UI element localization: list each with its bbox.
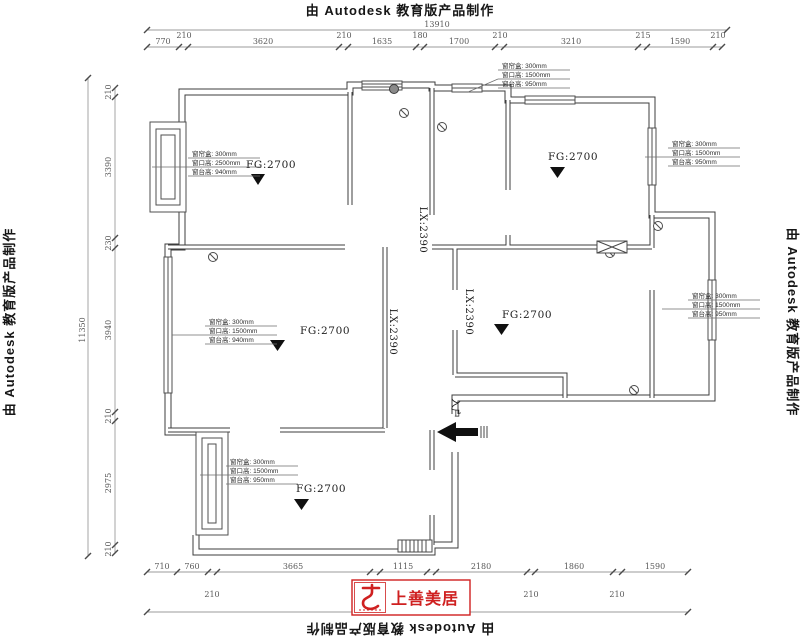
window-right-middle [708, 280, 716, 340]
logo-text: 上善美居 [391, 589, 459, 608]
dim-value: 2180 [471, 562, 491, 571]
dim-value: 1635 [372, 37, 392, 46]
window-callout-right-top: 窗帘盒: 300mm 窗口高: 1500mm 窗台高: 950mm [645, 139, 740, 166]
callout-row: 窗口高: 1500mm [230, 466, 278, 475]
window-left-middle [164, 257, 172, 393]
dim-labels-top: 13910 770 210 3620 210 1635 180 1700 210… [155, 20, 725, 46]
dim-value: 210 [609, 590, 624, 599]
dim-labels-left: 11350 210 3390 230 3940 210 2975 210 [78, 84, 113, 556]
dim-value: 180 [412, 31, 427, 40]
sliding-door-icon [597, 241, 627, 253]
window-callout-left-middle: 窗帘盒: 300mm 窗口高: 1500mm 窗台高: 940mm [172, 317, 277, 344]
level-triangle-icon [494, 324, 509, 335]
callout-row: 窗台高: 950mm [692, 309, 737, 318]
callout-row: 窗口高: 1500mm [692, 300, 740, 309]
dim-value: 210 [104, 541, 113, 556]
dim-value: 1590 [670, 37, 690, 46]
dim-value: 3940 [104, 320, 113, 340]
window-callout-bottom: 窗帘盒: 300mm 窗口高: 1500mm 窗台高: 950mm [200, 457, 298, 484]
callout-row: 窗台高: 940mm [192, 167, 237, 176]
drain-pipe-icon [390, 85, 399, 94]
window-callout-right-middle: 窗帘盒: 300mm 窗口高: 1500mm 窗台高: 950mm [662, 291, 760, 318]
cad-floorplan-screenshot: 由 Autodesk 教育版产品制作 由 Autodesk 教育版产品制作 由 … [0, 0, 800, 640]
dim-value: 3665 [283, 562, 303, 571]
callout-row: 窗台高: 950mm [230, 475, 275, 484]
callout-row: 窗帘盒: 300mm [502, 61, 547, 70]
dim-row-top-segments [144, 44, 725, 50]
dim-value: 3390 [104, 157, 113, 177]
dim-value: 215 [635, 31, 650, 40]
dim-row-bottom-segments [144, 569, 691, 575]
floor-plan-canvas: 由 Autodesk 教育版产品制作 由 Autodesk 教育版产品制作 由 … [0, 0, 800, 640]
fg-label: FG:2700 [300, 325, 350, 337]
fg-label: FG:2700 [246, 159, 296, 171]
entry-label: 入户 [449, 398, 462, 418]
callout-row: 窗台高: 950mm [672, 157, 717, 166]
callout-row: 窗台高: 950mm [502, 79, 547, 88]
lx-label: LX:2390 [463, 289, 474, 336]
dim-value: 210 [523, 590, 538, 599]
dim-value: 210 [336, 31, 351, 40]
dim-value: 1590 [645, 562, 665, 571]
fg-label: FG:2700 [296, 483, 346, 495]
fg-label: FG:2700 [548, 151, 598, 163]
fg-label: FG:2700 [502, 309, 552, 321]
dim-row-left-overall [85, 75, 91, 559]
dim-value: 3210 [561, 37, 581, 46]
callout-row: 窗帘盒: 300mm [230, 457, 275, 466]
dim-value: 13910 [424, 20, 449, 29]
level-triangle-icon [294, 499, 309, 510]
callout-row: 窗帘盒: 300mm [209, 317, 254, 326]
room-labels: FG:2700 FG:2700 FG:2700 FG:2700 FG:2700 … [246, 151, 598, 510]
dim-value: 230 [104, 235, 113, 250]
entry-marker: 入户 [437, 398, 487, 442]
callout-row: 窗帘盒: 300mm [692, 291, 737, 300]
dim-value: 210 [492, 31, 507, 40]
brand-logo: 上善美居 [352, 580, 470, 615]
window-callout-left-top: 窗帘盒: 300mm 窗口高: 2500mm 窗台高: 940mm [152, 149, 260, 176]
window-top-right [525, 96, 575, 104]
dim-value: 210 [104, 408, 113, 423]
callout-row: 窗口高: 1500mm [672, 148, 720, 157]
dim-value: 210 [104, 84, 113, 99]
dim-value: 1700 [449, 37, 469, 46]
callout-row: 窗口高: 1500mm [502, 70, 550, 79]
lx-label: LX:2390 [417, 207, 428, 254]
vent-grille-icon [398, 540, 432, 552]
dim-value: 770 [155, 37, 170, 46]
dim-value: 710 [154, 562, 169, 571]
watermark-bottom: 由 Autodesk 教育版产品制作 [306, 621, 494, 636]
entry-arrow-icon [437, 422, 478, 442]
dim-value: 2975 [104, 473, 113, 493]
dim-value: 210 [710, 31, 725, 40]
bay-window-bottom-left [196, 432, 228, 535]
watermark-top: 由 Autodesk 教育版产品制作 [306, 3, 494, 18]
dim-value: 1115 [393, 562, 413, 571]
callout-row: 窗帘盒: 300mm [672, 139, 717, 148]
dim-value: 210 [176, 31, 191, 40]
watermark-left: 由 Autodesk 教育版产品制作 [2, 228, 17, 416]
watermark-right: 由 Autodesk 教育版产品制作 [785, 228, 800, 416]
callout-row: 窗口高: 1500mm [209, 326, 257, 335]
lx-label: LX:2390 [387, 309, 398, 356]
dim-value: 1860 [564, 562, 584, 571]
dim-value: 11350 [78, 317, 87, 342]
callout-row: 窗帘盒: 300mm [192, 149, 237, 158]
level-triangle-icon [550, 167, 565, 178]
callout-row: 窗口高: 2500mm [192, 158, 240, 167]
level-triangle-icon [270, 340, 285, 351]
dim-value: 3620 [253, 37, 273, 46]
dim-value: 210 [204, 590, 219, 599]
callout-row: 窗台高: 940mm [209, 335, 254, 344]
window-right-upper [648, 128, 656, 185]
dim-value: 760 [184, 562, 199, 571]
